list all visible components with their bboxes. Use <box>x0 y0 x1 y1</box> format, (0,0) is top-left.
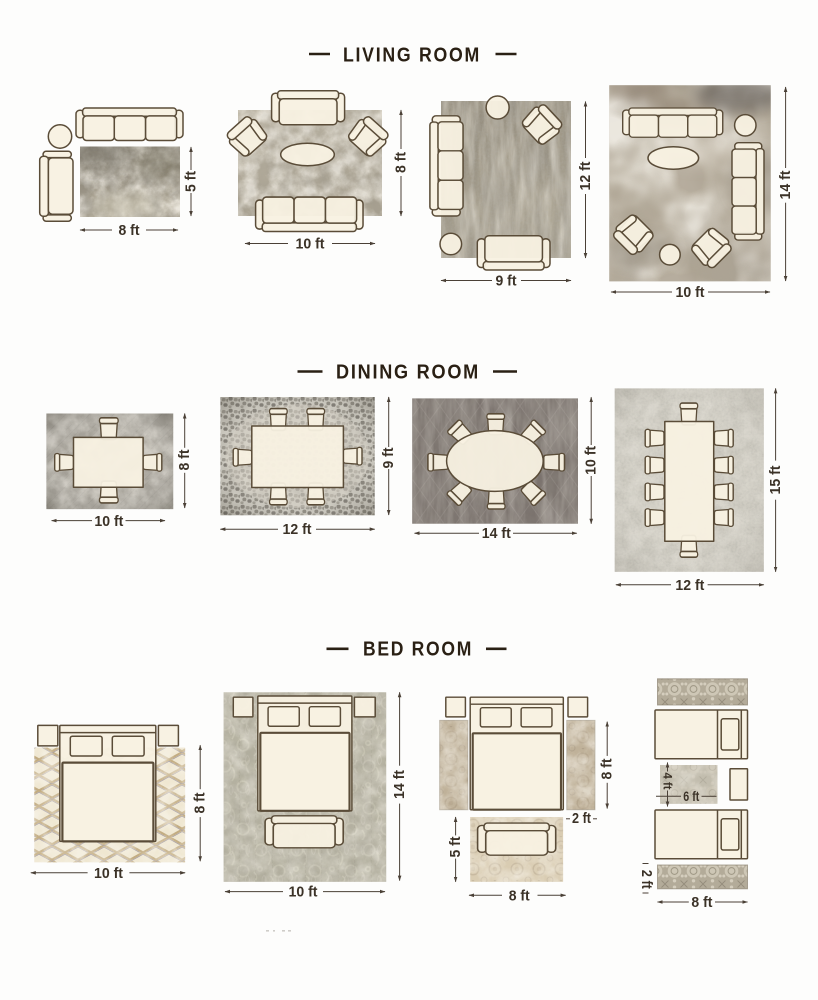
svg-text:LIVING ROOM: LIVING ROOM <box>343 44 481 67</box>
svg-text:12 ft: 12 ft <box>283 522 312 538</box>
svg-text:12 ft: 12 ft <box>578 161 594 190</box>
svg-text:8 ft: 8 ft <box>394 152 410 173</box>
svg-text:10 ft: 10 ft <box>94 866 123 882</box>
svg-text:DINING ROOM: DINING ROOM <box>336 361 480 384</box>
svg-text:9 ft: 9 ft <box>496 274 517 290</box>
svg-text:10 ft: 10 ft <box>289 885 318 901</box>
svg-text:8 ft: 8 ft <box>193 792 209 813</box>
svg-text:4 ft: 4 ft <box>661 773 673 790</box>
svg-text:BED ROOM: BED ROOM <box>363 638 473 661</box>
svg-text:10 ft: 10 ft <box>584 446 600 475</box>
svg-text:8 ft: 8 ft <box>177 449 193 470</box>
svg-text:14 ft: 14 ft <box>392 770 408 799</box>
svg-text:15 ft: 15 ft <box>768 465 784 494</box>
svg-text:10 ft: 10 ft <box>296 237 325 253</box>
svg-text:5 ft: 5 ft <box>184 171 200 192</box>
svg-text:2 ft: 2 ft <box>572 811 591 827</box>
svg-text:5 ft: 5 ft <box>448 836 464 857</box>
svg-text:8 ft: 8 ft <box>119 223 140 239</box>
svg-text:8 ft: 8 ft <box>691 895 712 911</box>
svg-text:10 ft: 10 ft <box>676 285 705 301</box>
svg-text:9 ft: 9 ft <box>381 447 397 468</box>
svg-text:6 ft: 6 ft <box>683 789 699 804</box>
svg-text:8 ft: 8 ft <box>509 888 530 904</box>
svg-text:10 ft: 10 ft <box>94 514 123 530</box>
svg-text:8 ft: 8 ft <box>600 758 616 779</box>
svg-text:2 ft: 2 ft <box>638 870 654 889</box>
svg-text:12 ft: 12 ft <box>675 578 704 594</box>
svg-text:14 ft: 14 ft <box>778 170 794 199</box>
svg-text:14 ft: 14 ft <box>482 526 511 542</box>
